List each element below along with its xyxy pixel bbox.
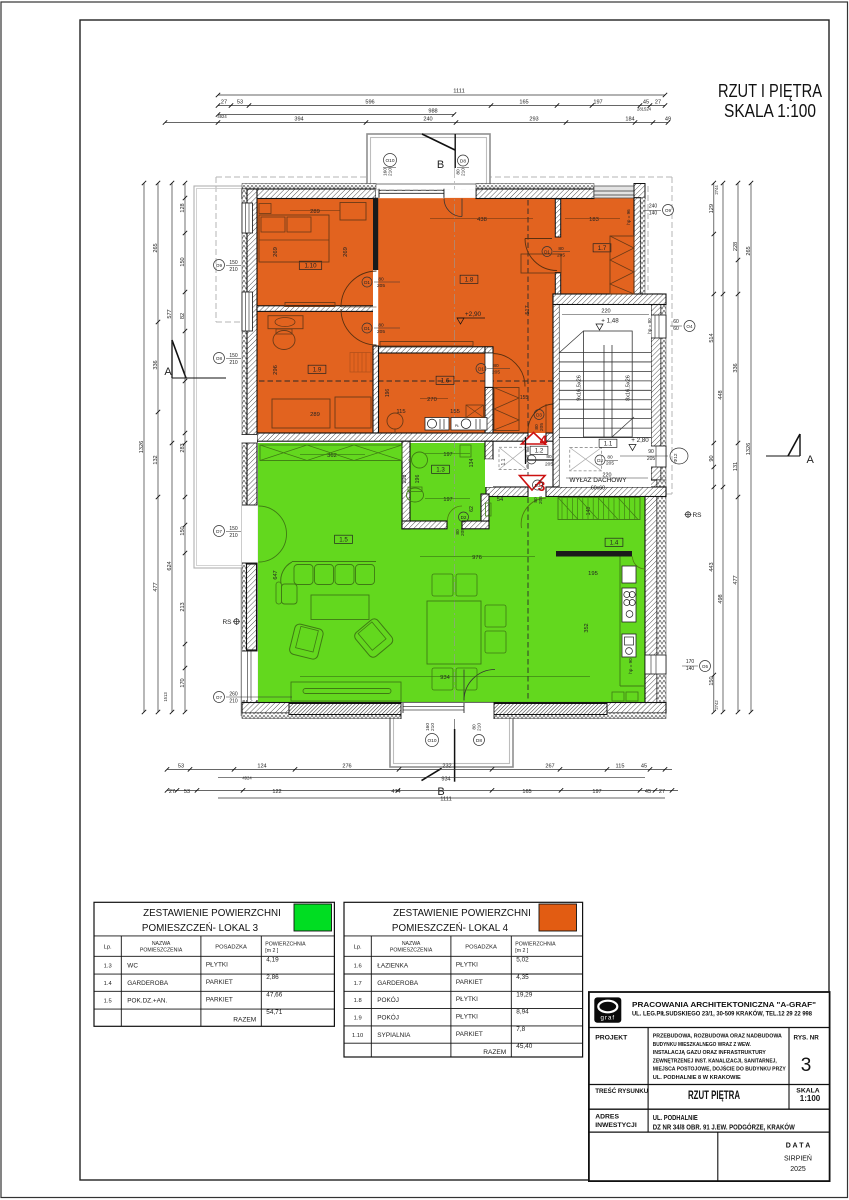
svg-text:[m 2 ]: [m 2 ]	[265, 948, 279, 954]
svg-text:80: 80	[607, 455, 613, 461]
svg-text:2744: 2744	[714, 185, 719, 195]
svg-text:45: 45	[643, 99, 649, 105]
svg-text:205: 205	[545, 462, 553, 468]
svg-text:170: 170	[180, 678, 186, 687]
svg-text:289: 289	[310, 209, 320, 215]
svg-text:2742: 2742	[714, 700, 719, 710]
svg-text:477: 477	[733, 575, 739, 584]
svg-text:D A T A: D A T A	[786, 1143, 811, 1150]
svg-text:POMIESZCZEŃ- LOKAL 3: POMIESZCZEŃ- LOKAL 3	[142, 923, 259, 934]
svg-text:1.6: 1.6	[354, 963, 362, 969]
svg-text:1.5: 1.5	[104, 998, 112, 1004]
svg-text:1.3: 1.3	[104, 963, 112, 969]
svg-text:SIRPIEŃ: SIRPIEŃ	[784, 1154, 812, 1163]
svg-text:394: 394	[294, 117, 303, 123]
svg-text:183: 183	[589, 217, 599, 223]
svg-text:POK.DZ.+AN.: POK.DZ.+AN.	[127, 997, 167, 1004]
svg-text:ZESTAWIENIE POWIERZCHNI: ZESTAWIENIE POWIERZCHNI	[143, 908, 281, 919]
svg-text:577: 577	[167, 309, 173, 318]
svg-text:205: 205	[460, 528, 466, 536]
svg-text:O4: O4	[686, 324, 693, 329]
svg-text:276: 276	[342, 763, 351, 769]
svg-text:210: 210	[229, 533, 238, 539]
svg-text:195: 195	[588, 571, 598, 577]
svg-text:O10: O10	[427, 738, 436, 744]
svg-text:220: 220	[601, 309, 610, 315]
svg-text:RAZEM: RAZEM	[483, 1049, 506, 1056]
svg-text:1.2: 1.2	[535, 448, 544, 455]
svg-text:934: 934	[440, 675, 450, 681]
svg-text:Φ12: Φ12	[673, 453, 679, 462]
svg-text:GARDEROBA: GARDEROBA	[127, 980, 169, 987]
svg-text:4,35: 4,35	[516, 974, 529, 981]
svg-text:232: 232	[442, 763, 451, 769]
svg-text:150: 150	[229, 260, 238, 266]
svg-text:PRZEBUDOWA, ROZBUDOWA ORAZ NAD: PRZEBUDOWA, ROZBUDOWA ORAZ NADBUDOWA	[653, 1034, 783, 1040]
svg-text:PŁYTKI: PŁYTKI	[456, 961, 478, 968]
svg-text:296: 296	[273, 365, 279, 375]
svg-text:269: 269	[343, 247, 349, 257]
svg-text:82: 82	[180, 313, 186, 319]
svg-text:184: 184	[625, 117, 634, 123]
svg-text:PŁYTKI: PŁYTKI	[456, 996, 478, 1003]
svg-text:197: 197	[593, 99, 602, 105]
svg-text:POMIESZCZEŃ- LOKAL 4: POMIESZCZEŃ- LOKAL 4	[392, 923, 509, 934]
svg-text:7,8: 7,8	[516, 1026, 525, 1033]
svg-text:WC: WC	[127, 962, 138, 969]
svg-text:POSADZKA: POSADZKA	[215, 945, 247, 951]
svg-text:O8: O8	[216, 356, 223, 361]
svg-text:210: 210	[229, 267, 238, 273]
svg-text:1111: 1111	[440, 797, 452, 803]
svg-text:150: 150	[180, 526, 186, 535]
svg-text:4: 4	[540, 433, 548, 448]
svg-text:45: 45	[641, 763, 647, 769]
svg-text:149: 149	[586, 507, 592, 516]
svg-text:UL. PODHALNIE 8 W KRAKOWIE: UL. PODHALNIE 8 W KRAKOWIE	[653, 1075, 741, 1081]
svg-text:PRACOWANIA ARCHITEKTONICZNA "A: PRACOWANIA ARCHITEKTONICZNA "A-GRAF"	[632, 1000, 817, 1009]
svg-text:122: 122	[272, 789, 281, 795]
svg-text:155: 155	[450, 409, 460, 415]
svg-text:8x16,5x26: 8x16,5x26	[626, 375, 632, 401]
svg-text:Lp.: Lp.	[354, 945, 362, 951]
svg-text:596: 596	[365, 99, 374, 105]
svg-text:132: 132	[153, 455, 159, 464]
svg-text:210: 210	[477, 723, 483, 731]
svg-text:129: 129	[709, 204, 715, 213]
svg-text:1.7: 1.7	[598, 245, 607, 252]
svg-text:140: 140	[649, 211, 658, 217]
svg-text:647: 647	[273, 570, 279, 579]
svg-text:205: 205	[377, 329, 385, 335]
svg-text:D1: D1	[364, 326, 370, 331]
svg-text:1.9: 1.9	[354, 1015, 362, 1021]
svg-text:80: 80	[493, 363, 499, 369]
svg-text:INWESTYCJI: INWESTYCJI	[595, 1122, 637, 1129]
svg-text:150: 150	[229, 353, 238, 359]
svg-text:210: 210	[461, 168, 467, 176]
svg-text:80: 80	[378, 277, 384, 283]
svg-text:POKÓJ: POKÓJ	[377, 995, 399, 1004]
svg-text:197: 197	[443, 452, 452, 458]
svg-text:210: 210	[229, 360, 238, 366]
svg-text:D7: D7	[216, 529, 222, 534]
svg-text:208: 208	[402, 475, 408, 484]
svg-text:498: 498	[718, 594, 724, 603]
svg-text:PŁYTKI: PŁYTKI	[456, 1013, 478, 1020]
svg-text:240: 240	[649, 204, 658, 210]
svg-text:POWIERZCHNIA: POWIERZCHNIA	[265, 942, 306, 948]
svg-text:165: 165	[519, 99, 528, 105]
svg-text:448: 448	[718, 390, 724, 399]
svg-text:SYPIALNIA: SYPIALNIA	[377, 1032, 411, 1039]
svg-text:53: 53	[184, 789, 190, 795]
svg-text:205: 205	[606, 461, 614, 467]
svg-text:PARKIET: PARKIET	[456, 1031, 483, 1038]
svg-text:9x16,5x26: 9x16,5x26	[577, 375, 583, 401]
svg-text:ADRES: ADRES	[595, 1114, 619, 1121]
svg-text:205: 205	[492, 370, 500, 376]
svg-text:PARKIET: PARKIET	[206, 996, 233, 1003]
svg-text:517: 517	[525, 305, 531, 314]
svg-text:D8: D8	[460, 159, 466, 165]
svg-text:PROJEKT: PROJEKT	[595, 1035, 628, 1042]
svg-text:265: 265	[153, 243, 159, 252]
svg-text:267: 267	[545, 763, 554, 769]
svg-text:53: 53	[178, 763, 184, 769]
svg-text:O7: O7	[216, 695, 223, 700]
svg-text:514: 514	[709, 333, 715, 342]
svg-text:ZEWNĘTRZENEJ INST. KANALIZACJI: ZEWNĘTRZENEJ INST. KANALIZACJI, SANITARN…	[653, 1058, 777, 1064]
svg-text:hp = 90: hp = 90	[628, 658, 633, 674]
svg-text:80: 80	[546, 454, 552, 460]
svg-text:128: 128	[180, 203, 186, 212]
svg-text:134: 134	[469, 459, 475, 468]
svg-text:PŁYTKI: PŁYTKI	[206, 961, 228, 968]
svg-text:D8: D8	[476, 738, 482, 744]
svg-text:POMIESZCZENIA: POMIESZCZENIA	[140, 948, 183, 954]
svg-text:60: 60	[673, 319, 679, 325]
svg-text:336: 336	[733, 363, 739, 372]
svg-text:19,29: 19,29	[516, 991, 532, 998]
svg-text:1.10: 1.10	[304, 263, 317, 270]
svg-text:1.4: 1.4	[610, 540, 619, 547]
svg-text:UL. PODHALNIE: UL. PODHALNIE	[653, 1113, 698, 1122]
svg-text:205: 205	[539, 423, 545, 431]
svg-text:62: 62	[469, 506, 475, 512]
svg-text:196: 196	[415, 475, 421, 484]
svg-text:265: 265	[746, 246, 752, 255]
svg-text:90: 90	[648, 449, 654, 455]
svg-text:197: 197	[443, 497, 452, 503]
svg-text:289: 289	[310, 412, 320, 418]
svg-text:POMIESZCZENIA: POMIESZCZENIA	[390, 948, 433, 954]
svg-text:150: 150	[180, 257, 186, 266]
svg-text:90: 90	[709, 455, 715, 461]
svg-text:4924: 4924	[242, 776, 252, 781]
svg-text:124: 124	[257, 763, 266, 769]
svg-text:[m 2 ]: [m 2 ]	[515, 948, 529, 954]
svg-text:8,94: 8,94	[516, 1009, 529, 1016]
svg-text:27: 27	[169, 789, 175, 795]
svg-text:NAZWA: NAZWA	[152, 941, 171, 947]
svg-text:269: 269	[273, 247, 279, 257]
svg-text:RZUT PIĘTRA: RZUT PIĘTRA	[688, 1090, 740, 1102]
svg-text:D2: D2	[461, 515, 467, 520]
svg-text:976: 976	[472, 555, 482, 561]
svg-text:1111: 1111	[453, 89, 465, 95]
svg-text:POSADZKA: POSADZKA	[465, 945, 497, 951]
svg-text:49: 49	[665, 117, 671, 123]
svg-text:RZUT I PIĘTRA: RZUT I PIĘTRA	[718, 80, 823, 101]
svg-text:197: 197	[592, 789, 601, 795]
svg-text:210: 210	[430, 723, 436, 731]
svg-text:PARKIET: PARKIET	[456, 979, 483, 986]
svg-text:1.8: 1.8	[465, 277, 474, 284]
svg-text:293: 293	[529, 117, 538, 123]
svg-text:D3: D3	[535, 483, 541, 488]
svg-text:RYS. NR: RYS. NR	[794, 1035, 820, 1042]
svg-text:+ 1,48: + 1,48	[601, 318, 619, 325]
svg-text:54,71: 54,71	[266, 1009, 282, 1016]
svg-text:UL. LEG.PIŁSUDSKIEGO 23/1, 30-: UL. LEG.PIŁSUDSKIEGO 23/1, 30-509 KRAKÓW…	[632, 1009, 812, 1018]
svg-text:2,86: 2,86	[266, 974, 279, 981]
svg-text:205: 205	[538, 496, 544, 504]
svg-text:TREŚĆ RYSUNKU: TREŚĆ RYSUNKU	[595, 1087, 649, 1095]
svg-text:210: 210	[229, 699, 238, 705]
svg-text:D3: D3	[536, 413, 542, 418]
svg-text:MIEJSCA POSTOJOWE, DOJŚCIE DO: MIEJSCA POSTOJOWE, DOJŚCIE DO BUDYNKU PR…	[653, 1066, 786, 1073]
svg-text:150: 150	[229, 526, 238, 532]
svg-text:NAZWA: NAZWA	[402, 941, 421, 947]
svg-text:3: 3	[801, 1055, 812, 1076]
svg-text:1.5: 1.5	[339, 537, 348, 544]
svg-text:336: 336	[153, 360, 159, 369]
svg-text:155: 155	[520, 395, 529, 401]
svg-text:115: 115	[396, 409, 405, 415]
svg-text:1.8: 1.8	[354, 998, 362, 1004]
svg-text:988: 988	[428, 109, 437, 115]
svg-text:352: 352	[584, 623, 590, 632]
svg-text:474: 474	[391, 789, 400, 795]
svg-text:BUDYNKU MIESZKALNEGO WRAZ Z WE: BUDYNKU MIESZKALNEGO WRAZ Z WEW.	[653, 1042, 751, 1048]
svg-text:205: 205	[377, 283, 385, 289]
svg-text:hp = 96: hp = 96	[626, 209, 631, 225]
svg-text:115: 115	[616, 763, 625, 769]
svg-text:hp = 80: hp = 80	[647, 318, 652, 334]
svg-text:1:100: 1:100	[800, 1094, 821, 1103]
svg-text:1.9: 1.9	[313, 367, 322, 374]
svg-text:283: 283	[180, 443, 186, 452]
svg-text:1.1: 1.1	[501, 458, 507, 465]
svg-text:213: 213	[180, 602, 186, 611]
svg-text:1326: 1326	[746, 443, 752, 455]
svg-text:228: 228	[733, 242, 739, 251]
svg-text:B: B	[437, 159, 444, 171]
svg-text:+ 2,80: + 2,80	[631, 437, 649, 444]
svg-text:240: 240	[423, 117, 432, 123]
svg-text:D1: D1	[364, 280, 370, 285]
svg-text:438: 438	[477, 217, 487, 223]
svg-text:4,19: 4,19	[266, 956, 279, 963]
svg-text:45,40: 45,40	[516, 1043, 532, 1050]
svg-text:D3: D3	[597, 458, 603, 463]
svg-text:+2,90: +2,90	[465, 311, 482, 318]
svg-text:60: 60	[673, 326, 679, 332]
svg-text:1.6: 1.6	[441, 378, 450, 385]
svg-text:150: 150	[709, 676, 715, 685]
svg-text:27: 27	[659, 789, 665, 795]
svg-text:D1: D1	[478, 367, 484, 372]
svg-text:SKALA 1:100: SKALA 1:100	[724, 100, 816, 121]
svg-text:260: 260	[229, 692, 238, 698]
svg-text:O9: O9	[665, 208, 672, 213]
svg-text:1.1: 1.1	[604, 441, 613, 448]
svg-text:27: 27	[655, 99, 661, 105]
svg-text:80: 80	[558, 246, 564, 252]
svg-text:53: 53	[237, 99, 243, 105]
svg-text:PŁ: PŁ	[455, 424, 459, 428]
svg-text:362: 362	[327, 453, 337, 459]
svg-text:1.3: 1.3	[436, 467, 445, 474]
svg-text:1326: 1326	[139, 441, 145, 453]
svg-text:131: 131	[733, 462, 739, 471]
svg-text:DZ NR 34/8 OBR. 91 J.EW. PODGÓ: DZ NR 34/8 OBR. 91 J.EW. PODGÓRZE, KRAKÓ…	[653, 1123, 795, 1132]
svg-text:205: 205	[647, 456, 656, 462]
svg-text:281524: 281524	[637, 107, 652, 112]
svg-text:RS: RS	[222, 619, 232, 626]
svg-text:624: 624	[167, 561, 173, 570]
svg-text:5,02: 5,02	[516, 956, 529, 963]
svg-text:INSTALACJĄ GAZU ORAZ INFRASTRU: INSTALACJĄ GAZU ORAZ INFRASTRUKTURY	[653, 1050, 766, 1056]
svg-text:O10: O10	[385, 158, 394, 164]
svg-text:POWIERZCHNIA: POWIERZCHNIA	[515, 942, 556, 948]
svg-text:443: 443	[709, 562, 715, 571]
svg-text:1.4: 1.4	[104, 981, 113, 987]
svg-text:O9: O9	[216, 263, 223, 268]
svg-text:POKÓJ: POKÓJ	[377, 1012, 399, 1021]
svg-text:47,66: 47,66	[266, 991, 282, 998]
svg-text:1.10: 1.10	[352, 1033, 363, 1039]
svg-text:graf: graf	[600, 1015, 615, 1022]
svg-text:ZESTAWIENIE POWIERZCHNI: ZESTAWIENIE POWIERZCHNI	[393, 908, 531, 919]
svg-text:45: 45	[645, 789, 651, 795]
svg-text:196: 196	[385, 389, 391, 398]
svg-text:GARDEROBA: GARDEROBA	[377, 980, 419, 987]
svg-text:270: 270	[427, 397, 437, 403]
svg-text:934: 934	[441, 776, 450, 782]
svg-text:210: 210	[388, 168, 394, 176]
svg-text:165: 165	[522, 789, 531, 795]
svg-text:PARKIET: PARKIET	[206, 979, 233, 986]
svg-text:80: 80	[378, 323, 384, 329]
svg-text:A: A	[164, 366, 172, 378]
svg-text:Lp.: Lp.	[104, 945, 112, 951]
svg-text:ŁAZIENKA: ŁAZIENKA	[377, 962, 409, 969]
svg-text:1.7: 1.7	[354, 981, 362, 987]
svg-text:170: 170	[686, 659, 695, 665]
svg-text:60x60: 60x60	[591, 486, 605, 492]
svg-text:1513: 1513	[163, 692, 168, 702]
svg-text:27: 27	[221, 99, 227, 105]
svg-text:A: A	[807, 454, 815, 466]
svg-text:54: 54	[497, 497, 503, 503]
svg-text:140: 140	[686, 666, 695, 672]
svg-text:4924: 4924	[217, 114, 227, 119]
svg-text:2025: 2025	[790, 1166, 806, 1173]
svg-text:477: 477	[153, 582, 159, 591]
svg-text:RS: RS	[692, 512, 702, 519]
svg-text:O5: O5	[702, 664, 709, 669]
svg-text:RAZEM: RAZEM	[233, 1017, 256, 1024]
svg-text:220: 220	[603, 473, 612, 479]
